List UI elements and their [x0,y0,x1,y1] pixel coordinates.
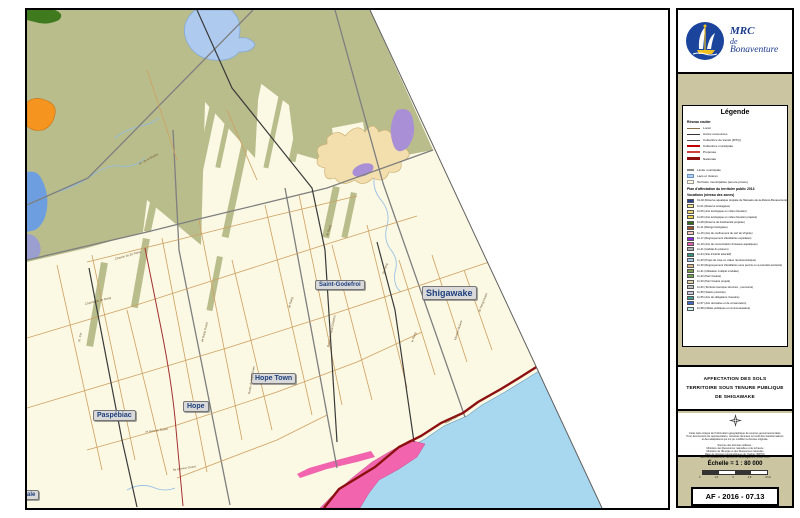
scale-tick: 1,5 [715,476,719,479]
zone-color-swatch [687,274,694,278]
scale-tick: 6 km [765,476,771,479]
zone-color-swatch [687,280,694,284]
scale-bar [702,470,768,475]
road-label: le Rang [410,332,417,343]
road-label: Chemin du 2e Rang [114,250,141,261]
info-block: Cette carte intègre de l'information géo… [678,413,792,457]
legend-patp-subheader: Vocations (niveau des zones) [687,193,783,197]
zone-color-swatch [687,269,694,273]
legend-patp-item: 11-17 (Regroupement d'érablières exploit… [687,237,783,241]
legend-patp-item: 11-11 (Refuge biologique) [687,226,783,230]
compass-rose-icon [729,414,742,427]
zone-color-swatch [687,199,694,203]
logo-line3: Bonaventure [730,46,778,56]
legend-road-item: Accès ressources [687,132,783,136]
legend-road-item: Collectrice municipale [687,144,783,148]
logo-text: MRC de Bonaventure [730,26,778,56]
place-label-shigawake: Shigawake [422,286,477,300]
zone-color-swatch [687,291,694,295]
road-label: 5e Avenue Ouest [173,464,196,472]
reference-number: AF - 2016 - 07.13 [706,492,765,501]
legend-area-item: Territoire municipalisé (tenure privée) [687,180,783,184]
zone-color-swatch [687,226,694,230]
road-label: 2e Rang Ouest [477,293,488,313]
zone-color-swatch [687,231,694,235]
title-line2: TERRITOIRE SOUS TENURE PUBLIQUE [678,386,792,391]
map-labels-overlay: PaspébiacHopeHope TownSaint-GodefroiShig… [27,10,668,508]
legend-patp-header: Plan d'affectation du territoire public … [687,187,783,191]
title-line1: AFFECTATION DES SOLS [678,377,792,382]
legend-patp-item: 11-57 (Aire récréative et de conservatio… [687,301,783,305]
legend: Légende Réseau routier Local Accès resso… [682,105,788,347]
zone-color-swatch [687,307,694,311]
legend-patp-item: 11-25 (Projet de mise en valeur récréoto… [687,258,783,262]
legend-patp-item: 11-32 (Parc linéaire) [687,274,783,278]
legend-patp-item: 01-02 (Réserve aquatique projetée de l'E… [687,199,783,203]
sources-text: Sources des données utilisées :Ministère… [678,444,792,459]
road-label: 2e Rang [381,263,389,275]
legend-road-item: Proposée [687,150,783,154]
legend-road-item: Nationale [687,157,783,161]
zone-color-swatch [687,285,694,289]
road-label: Montée McGee [453,320,463,341]
legend-patp-list: 01-02 (Réserve aquatique projetée de l'E… [687,199,783,311]
place-label-hope: Hope [183,401,209,412]
place-label-hope-town: Hope Town [251,373,296,384]
zone-color-swatch [687,221,694,225]
scale-tick: 4,5 [748,476,752,479]
logo-box: MRC de Bonaventure [678,10,792,74]
road-label: ch. de la Rivière [138,152,159,166]
place-label-saint-godefroi: Saint-Godefroi [315,280,365,290]
legend-patp-item: 11-24 (Site d'intérêt éducatif) [687,253,783,257]
legend-patp-item: 11-56 (Aire de villégiature riveraine) [687,296,783,300]
zone-color-swatch [687,215,694,219]
road-label: 4e Rang [325,225,332,237]
disclaimer-text: Cette carte intègre de l'information géo… [678,432,792,442]
road-label: 4e Rang Ouest [200,322,209,343]
legend-patp-item: 11-05 (Aire écologique en milieu foresti… [687,210,783,214]
road-label: Chemin du 3e Rang [85,296,112,306]
place-label-pasp-biac: Paspébiac [93,410,136,421]
legend-area-item: Limite municipale [687,168,783,172]
logo-line1: MRC [730,26,778,38]
legend-patp-item: 11-52 (Territoire faunique structuré - p… [687,285,783,289]
disclaimer-line: et des adaptations qui ont pu modifier l… [678,438,792,441]
mrc-bonaventure-logo-icon [685,21,725,61]
area-swatch [687,169,694,171]
scale-label: Échelle = 1 : 80 000 [678,461,792,467]
scale-ticks: 01,534,56 km [699,476,771,479]
area-swatch [687,180,694,184]
road-label: Route de Saint-Godefroi [326,315,337,347]
title-block: AFFECTATION DES SOLS TERRITOIRE SOUS TEN… [678,365,792,411]
legend-area-list: Limite municipale Lacs et rivières Terri… [687,168,783,184]
zone-color-swatch [687,301,694,305]
area-swatch [687,174,694,178]
map-frame: PaspébiacHopeHope TownSaint-GodefroiShig… [25,8,670,510]
zone-color-swatch [687,237,694,241]
road-label: ch. Cyr [77,332,83,342]
legend-area-item: Lacs et rivières [687,174,783,178]
legend-patp-item: 11-01 (Réserve écologique) [687,204,783,208]
zone-color-swatch [687,242,694,246]
legend-patp-item: 11-08 (Réserve de biodiversité projetée) [687,221,783,225]
legend-road-list: Local Accès ressources Collectrice de tr… [687,126,783,160]
road-label: 3e Rang [287,297,294,309]
road-line-swatch [687,151,700,153]
road-label: Route 132 [444,415,458,425]
zone-color-swatch [687,253,694,257]
zone-color-swatch [687,258,694,262]
legend-patp-item: 11-55 (Station piscicole) [687,291,783,295]
legend-patp-item: 11-31 (Utilisation multiple modulée) [687,269,783,273]
legend-patp-item: 11-33 (Parc linéaire projeté) [687,280,783,284]
legend-roads-header: Réseau routier [687,120,783,124]
reference-box: AF - 2016 - 07.13 [691,487,779,506]
scale-tick: 0 [699,476,700,479]
zone-color-swatch [687,264,694,268]
sidebar: MRC de Bonaventure Légende Réseau routie… [676,8,794,508]
scale-block: Échelle = 1 : 80 000 01,534,56 km [678,459,792,486]
legend-patp-item: 11-58 (Utilités publiques et communautai… [687,307,783,311]
legend-road-item: Collectrice de transit (MTQ) [687,138,783,142]
legend-patp-item: 11-30 (Regroupement d'érablières sous pe… [687,264,783,268]
zone-color-swatch [687,247,694,251]
road-line-swatch [687,145,700,147]
legend-patp-item: 11-19 (Aire de concentration d'oiseaux a… [687,242,783,246]
legend-title: Légende [687,109,783,116]
map-sheet: PaspébiacHopeHope TownSaint-GodefroiShig… [0,0,800,518]
road-line-swatch [687,134,700,135]
zone-color-swatch [687,204,694,208]
road-line-swatch [687,157,700,160]
place-label-ale: ale [25,490,39,500]
legend-patp-item: 11-06 (Aire écologique en milieu foresti… [687,215,783,219]
road-label: 7e Avenue Ouest [145,427,168,434]
legend-patp-item: 11-15 (Aire de confinement du cerf de Vi… [687,231,783,235]
zone-color-swatch [687,296,694,300]
title-line3: DE SHIGAWAKE [678,395,792,400]
legend-patp-item: 11-21 (Habitat du poisson) [687,247,783,251]
legend-road-item: Local [687,126,783,130]
zone-color-swatch [687,210,694,214]
scale-tick: 3 [732,476,733,479]
road-line-swatch [687,128,700,129]
road-line-swatch [687,140,700,141]
